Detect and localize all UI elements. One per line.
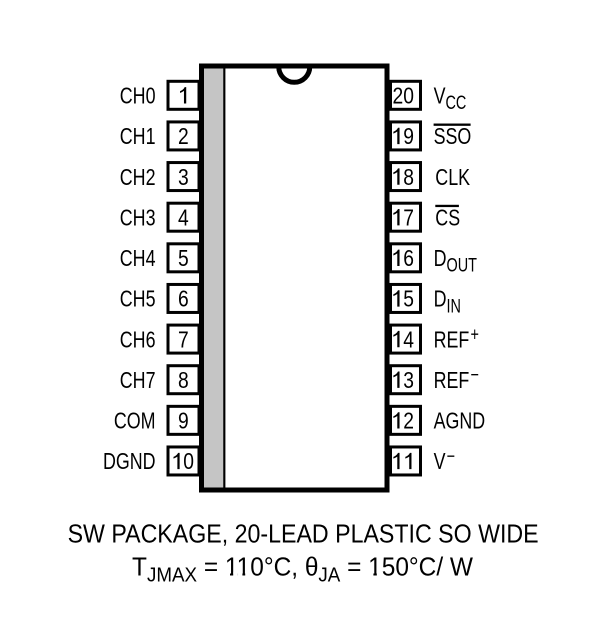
svg-text:2: 2 — [403, 408, 414, 434]
svg-text:CLK: CLK — [435, 164, 470, 190]
svg-text:9: 9 — [178, 408, 189, 434]
svg-text:CH3: CH3 — [120, 205, 156, 231]
svg-text:CH4: CH4 — [120, 246, 156, 272]
svg-text:CH5: CH5 — [120, 286, 156, 312]
svg-text:COM: COM — [114, 408, 156, 434]
svg-text:9: 9 — [403, 123, 414, 149]
svg-text:7: 7 — [403, 205, 414, 231]
svg-text:0: 0 — [183, 448, 194, 474]
svg-text:8: 8 — [178, 367, 189, 393]
svg-text:7: 7 — [178, 327, 189, 353]
svg-text:CH7: CH7 — [120, 368, 156, 394]
svg-text:CH0: CH0 — [120, 83, 156, 109]
svg-text:6: 6 — [178, 286, 189, 312]
svg-text:3: 3 — [403, 367, 414, 393]
svg-text:4: 4 — [178, 205, 189, 231]
svg-text:6: 6 — [403, 245, 414, 271]
svg-text:2: 2 — [392, 83, 403, 109]
svg-text:DGND: DGND — [103, 449, 156, 475]
svg-text:AGND: AGND — [434, 408, 486, 434]
svg-text:CS: CS — [435, 205, 460, 231]
svg-text:CH6: CH6 — [120, 327, 156, 353]
svg-text:CH2: CH2 — [120, 164, 156, 190]
svg-text:SSO: SSO — [434, 124, 472, 150]
svg-text:4: 4 — [403, 327, 414, 353]
svg-text:SW PACKAGE, 20-LEAD PLASTIC SO: SW PACKAGE, 20-LEAD PLASTIC SO WIDE — [68, 520, 539, 548]
svg-text:5: 5 — [403, 286, 414, 312]
svg-text:3: 3 — [178, 164, 189, 190]
svg-text:0: 0 — [403, 83, 414, 109]
svg-text:CH1: CH1 — [120, 124, 156, 150]
svg-text:5: 5 — [178, 245, 189, 271]
svg-text:8: 8 — [403, 164, 414, 190]
svg-text:2: 2 — [178, 123, 189, 149]
